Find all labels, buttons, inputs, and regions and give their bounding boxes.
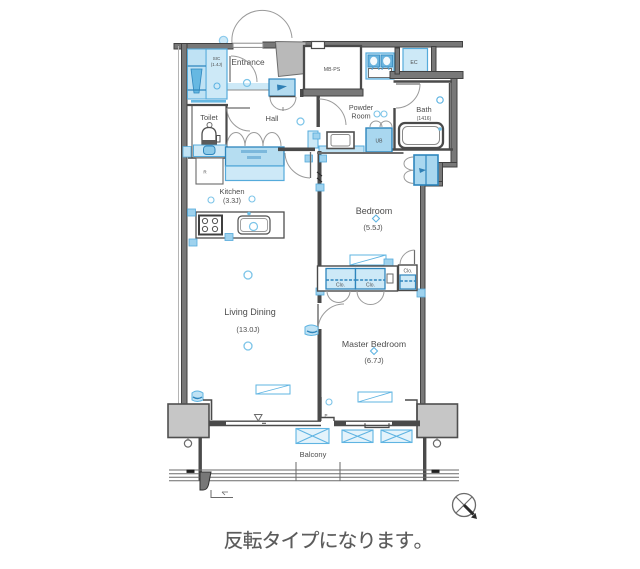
svg-text:Clo.: Clo. <box>336 283 345 289</box>
svg-text:Clo.: Clo. <box>366 283 375 289</box>
svg-text:MB·PS: MB·PS <box>324 67 341 73</box>
svg-text:(3.3J): (3.3J) <box>223 198 241 205</box>
svg-text:EC: EC <box>410 60 417 66</box>
svg-text:(1.4J): (1.4J) <box>211 62 223 67</box>
svg-text:(6.7J): (6.7J) <box>364 356 384 365</box>
svg-text:(13.0J): (13.0J) <box>236 325 260 334</box>
svg-text:Living Dining: Living Dining <box>224 307 276 317</box>
svg-text:Bath: Bath <box>416 105 431 114</box>
svg-text:SIC: SIC <box>213 56 221 61</box>
svg-text:(5.5J): (5.5J) <box>363 223 383 232</box>
svg-text:UB: UB <box>376 139 384 145</box>
svg-text:P: P <box>324 413 327 418</box>
svg-text:Room: Room <box>351 112 370 121</box>
svg-text:(1416): (1416) <box>417 116 432 122</box>
svg-text:Clo.: Clo. <box>404 269 413 275</box>
svg-text:Kitchen: Kitchen <box>219 187 244 196</box>
svg-text:Balcony: Balcony <box>300 450 327 459</box>
svg-text:Hall: Hall <box>266 114 279 123</box>
svg-text:Toilet: Toilet <box>200 113 218 122</box>
svg-text:Bedroom: Bedroom <box>356 206 393 216</box>
